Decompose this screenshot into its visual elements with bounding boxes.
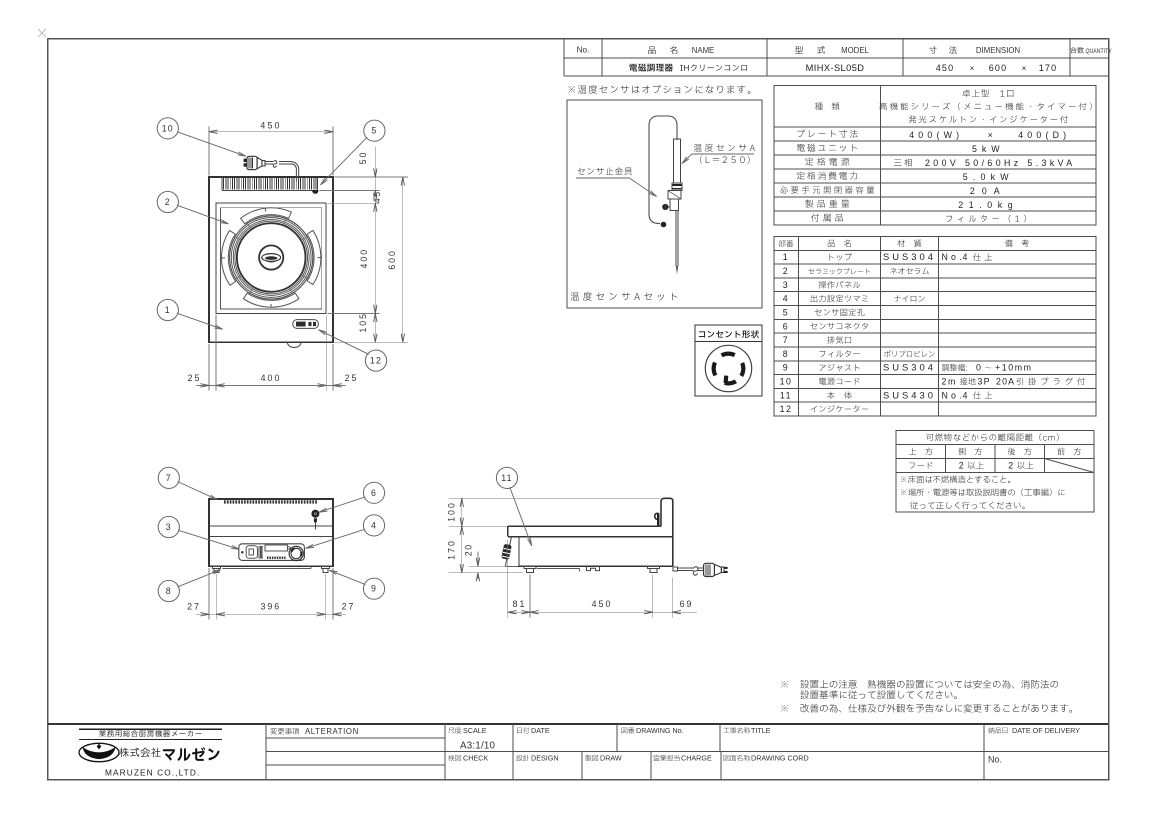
svg-text:20: 20: [464, 543, 474, 556]
svg-text:45: 45: [372, 190, 382, 203]
svg-text:×: ×: [970, 64, 975, 73]
svg-text:450: 450: [936, 63, 955, 73]
svg-text:20A: 20A: [970, 186, 1007, 196]
svg-text:3P: 3P: [978, 376, 991, 386]
svg-text:2: 2: [1008, 461, 1013, 471]
svg-text:DESIGN: DESIGN: [531, 754, 559, 763]
svg-text:105: 105: [358, 312, 368, 333]
svg-text:7: 7: [783, 335, 789, 345]
svg-text:11: 11: [780, 390, 792, 400]
svg-text:200V 50/60Hz 5.3kVA: 200V 50/60Hz 5.3kVA: [925, 158, 1076, 168]
svg-text:69: 69: [680, 599, 694, 609]
svg-text:25: 25: [188, 373, 202, 383]
svg-text:8: 8: [166, 586, 172, 596]
svg-text:5: 5: [371, 126, 377, 136]
svg-text:400: 400: [261, 373, 282, 383]
svg-text:DRAWING CORD: DRAWING CORD: [751, 754, 809, 763]
svg-text:6: 6: [783, 321, 789, 331]
svg-text:400(W): 400(W): [909, 130, 963, 140]
svg-text:450: 450: [592, 599, 613, 609]
svg-text:600: 600: [989, 63, 1008, 73]
svg-text:25: 25: [345, 373, 359, 383]
svg-text:SCALE: SCALE: [463, 726, 487, 735]
svg-text:170: 170: [447, 539, 457, 560]
svg-text:×: ×: [1022, 64, 1027, 73]
svg-text:DATE: DATE: [531, 726, 550, 735]
svg-text:4: 4: [963, 390, 968, 400]
svg-text:5.0kW: 5.0kW: [963, 172, 1014, 182]
svg-text:2m: 2m: [942, 376, 957, 386]
svg-text:9: 9: [371, 584, 377, 594]
svg-text:0: 0: [976, 363, 981, 373]
svg-text:4: 4: [783, 294, 789, 304]
svg-text:DIMENSION: DIMENSION: [976, 46, 1020, 55]
svg-text:27: 27: [187, 601, 201, 611]
svg-text:No.: No.: [988, 755, 1002, 765]
svg-text:+10mm: +10mm: [995, 363, 1033, 373]
svg-text:MIHX-SL05D: MIHX-SL05D: [806, 63, 865, 73]
svg-text:2: 2: [783, 266, 789, 276]
svg-text:6: 6: [371, 488, 377, 498]
svg-text:CHARGE: CHARGE: [681, 754, 712, 763]
svg-text:10: 10: [162, 123, 174, 133]
svg-text:170: 170: [1039, 63, 1058, 73]
svg-text:12: 12: [370, 356, 382, 366]
svg-text:1: 1: [165, 305, 171, 315]
svg-text:QUANTITY: QUANTITY: [1086, 48, 1112, 54]
svg-text:1: 1: [783, 252, 789, 262]
svg-text:9: 9: [783, 363, 789, 373]
svg-text:No.: No.: [942, 390, 965, 400]
svg-text:11: 11: [501, 473, 513, 483]
svg-text:81: 81: [513, 599, 527, 609]
svg-text:SUS304: SUS304: [883, 362, 936, 373]
svg-text:12: 12: [780, 404, 793, 414]
svg-text:400: 400: [359, 248, 369, 269]
svg-text:396: 396: [260, 601, 281, 611]
svg-text:2: 2: [959, 461, 964, 471]
svg-text:3: 3: [783, 280, 789, 290]
svg-text:10: 10: [780, 376, 793, 386]
svg-text:100: 100: [447, 501, 457, 522]
svg-text:3: 3: [166, 522, 172, 532]
svg-text:450: 450: [260, 121, 281, 131]
svg-text:400(D): 400(D): [1018, 130, 1070, 140]
svg-text:4: 4: [371, 520, 377, 530]
svg-text:DRAW: DRAW: [600, 754, 622, 763]
svg-text:A3:1/10: A3:1/10: [460, 741, 496, 752]
svg-text:4: 4: [963, 252, 968, 262]
svg-text:8: 8: [783, 349, 789, 359]
svg-text:5: 5: [783, 307, 789, 317]
svg-text:DRAWING No.: DRAWING No.: [636, 726, 684, 735]
svg-text:NAME: NAME: [692, 46, 715, 55]
svg-text:TITLE: TITLE: [751, 726, 771, 735]
svg-text:600: 600: [387, 249, 397, 270]
svg-text:MODEL: MODEL: [841, 46, 869, 55]
svg-text:×: ×: [988, 130, 993, 140]
svg-text:5kW: 5kW: [972, 144, 1005, 154]
svg-text:No.: No.: [577, 46, 590, 55]
svg-text:50: 50: [358, 151, 368, 165]
svg-text:2: 2: [165, 197, 171, 207]
svg-text:CHECK: CHECK: [463, 754, 488, 763]
svg-text:7: 7: [166, 473, 172, 483]
svg-text:21.0kg: 21.0kg: [958, 200, 1018, 210]
svg-text:20A: 20A: [996, 376, 1015, 386]
svg-text:SUS304: SUS304: [883, 251, 936, 262]
svg-text:27: 27: [342, 601, 356, 611]
svg-text:No.: No.: [942, 252, 965, 262]
svg-text:MARUZEN CO.,LTD.: MARUZEN CO.,LTD.: [105, 767, 200, 777]
svg-text:SUS430: SUS430: [883, 389, 936, 400]
svg-text:ALTERATION: ALTERATION: [305, 727, 359, 736]
svg-text:DATE OF DELIVERY: DATE OF DELIVERY: [1012, 726, 1080, 735]
